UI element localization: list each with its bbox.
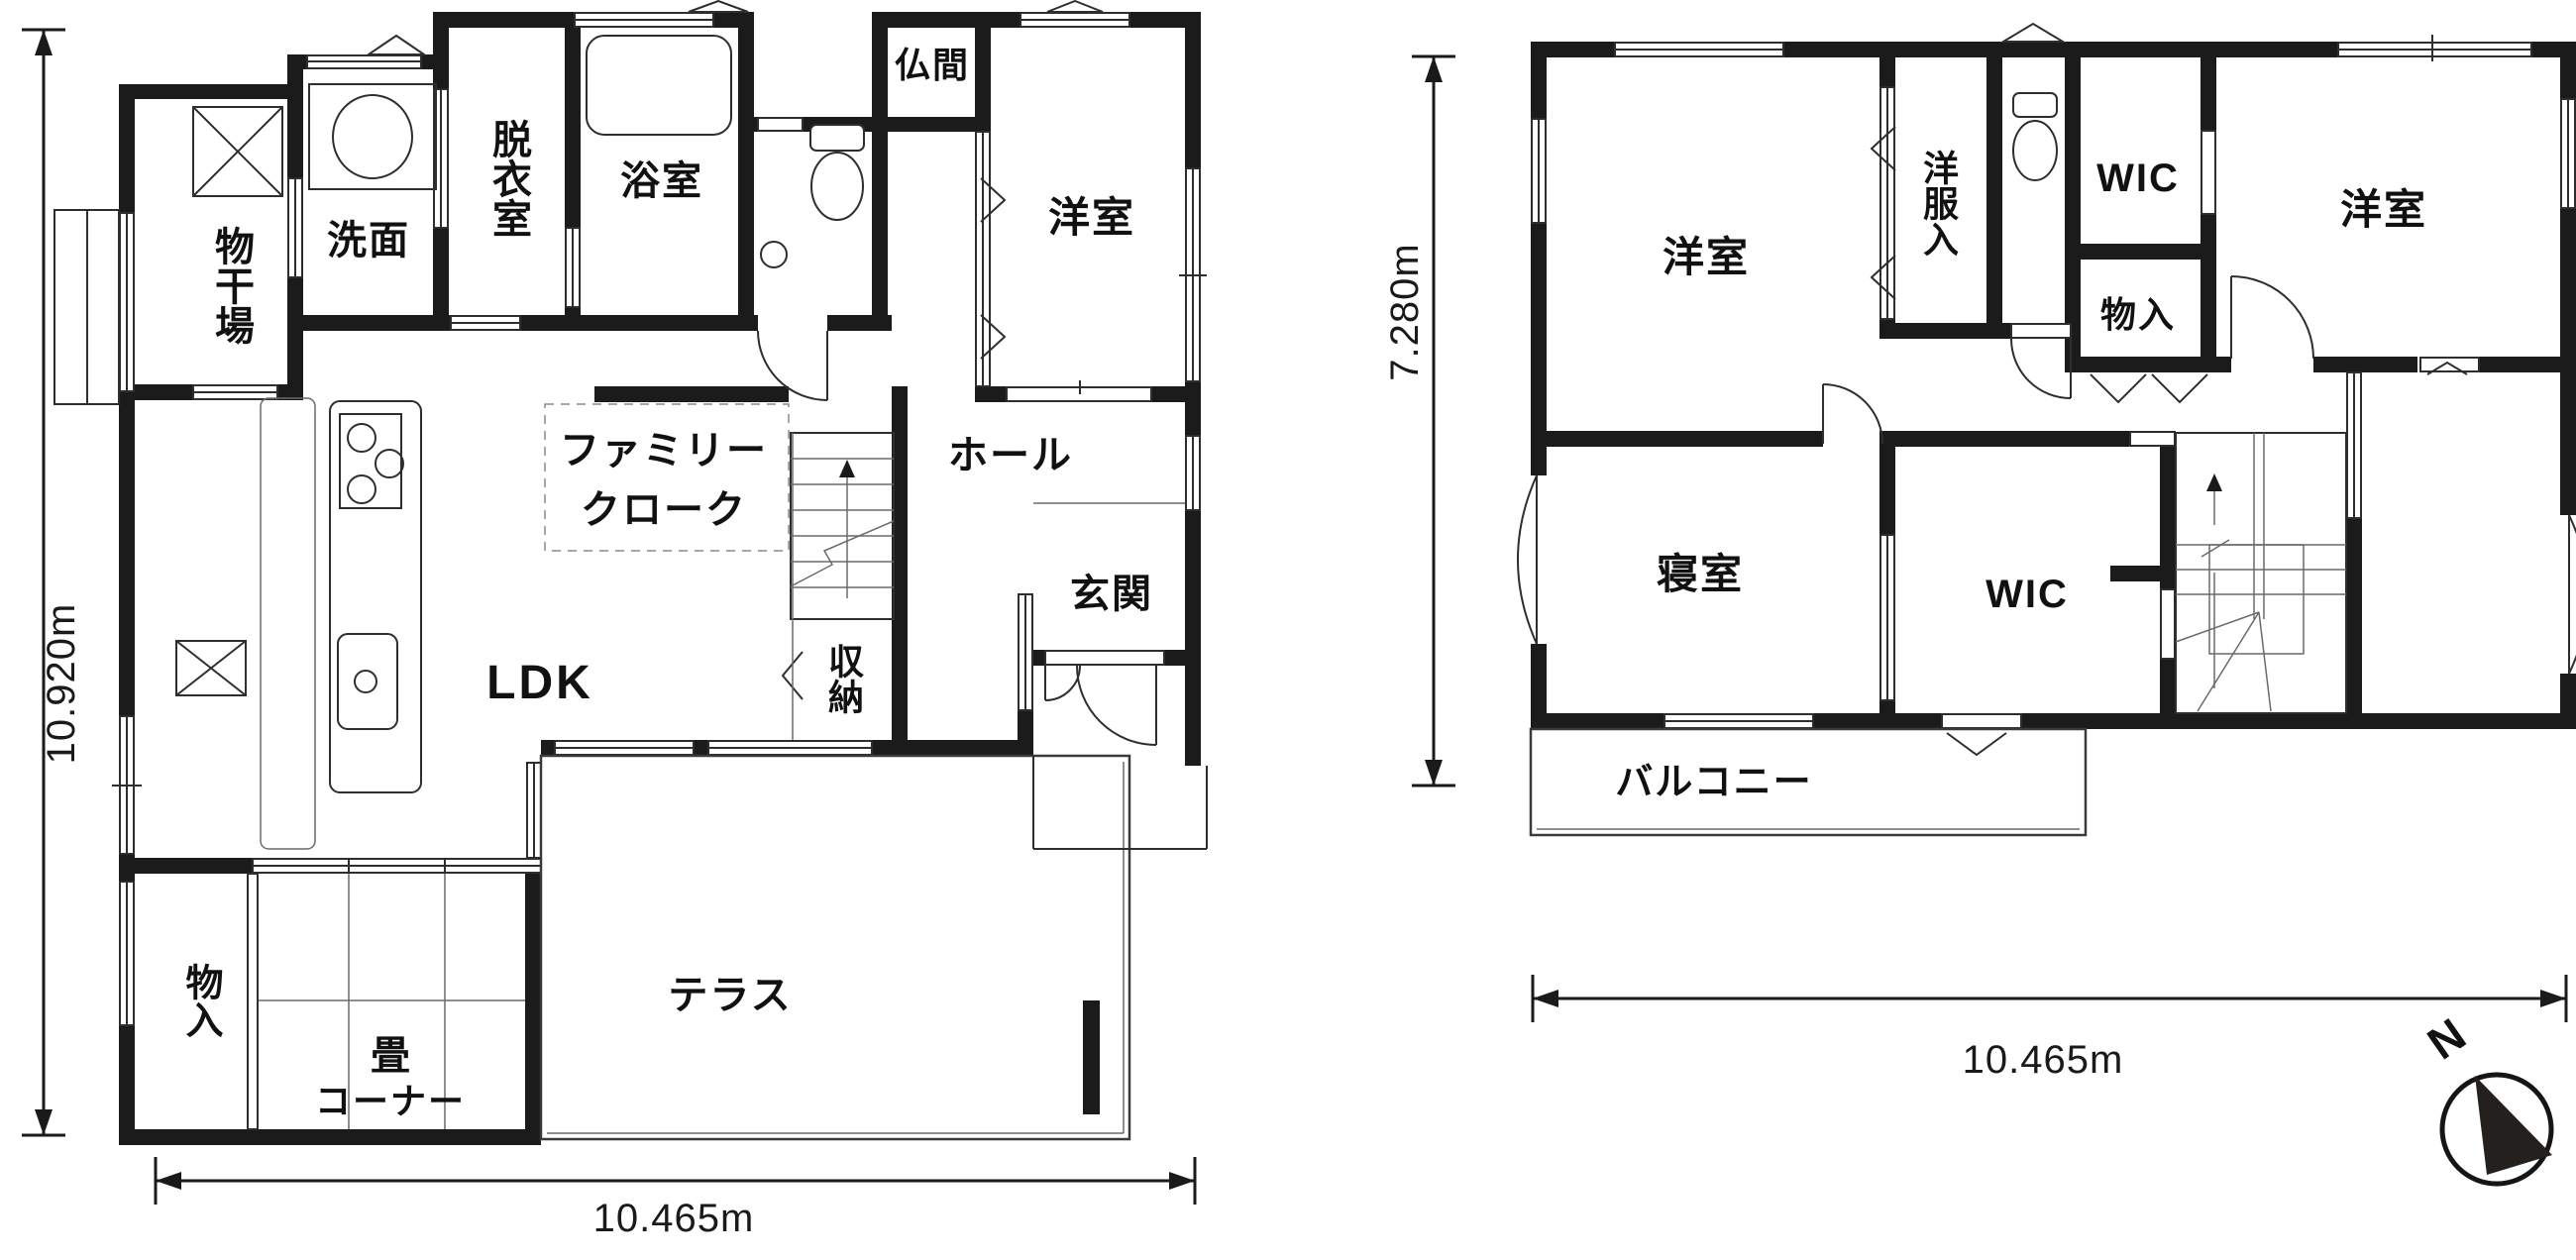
dimension-f2-height: 7.280m — [1385, 243, 1425, 380]
room-label-shinshitsu: 寝室 — [1657, 554, 1744, 595]
kitchen-counter-icon — [261, 398, 421, 849]
washbasin-icon — [309, 84, 436, 189]
f2-stairs-icon — [2176, 433, 2346, 713]
room-label-monoire-f1: 物入 — [181, 963, 219, 1038]
dimension-f1-height: 10.920m — [42, 603, 81, 765]
dimension-f1-width: 10.465m — [593, 1199, 755, 1238]
room-label-monohoshiba: 物干場 — [211, 226, 251, 345]
f2-vent-icon — [2003, 24, 2063, 42]
hatch-box-icon-ldk — [176, 641, 246, 695]
room-label-wic-top: WIC — [2096, 158, 2180, 198]
terrace-outline — [541, 756, 1129, 1139]
entrance-porch-outline — [1033, 503, 1207, 849]
dimension-lines — [22, 30, 2566, 1205]
room-label-shuunou: 収納 — [825, 643, 861, 714]
room-label-youfukuire: 洋服入 — [1920, 150, 1956, 257]
compass-icon — [2442, 1075, 2552, 1184]
room-label-tatami-line1: 畳 — [371, 1036, 412, 1076]
dimension-f2-width: 10.465m — [1963, 1040, 2124, 1080]
hatch-box-icon-top — [193, 107, 282, 196]
room-label-datsuishitsu: 脱衣室 — [488, 119, 528, 238]
room-label-tatami-line2: コーナー — [315, 1084, 466, 1119]
bathtub-icon — [587, 36, 731, 135]
toilet-icon-f2 — [2013, 93, 2057, 180]
toilet-icon-f1 — [761, 125, 864, 267]
room-label-genkan: 玄関 — [1070, 575, 1153, 614]
room-label-youshitsu-f2-right: 洋室 — [2340, 189, 2427, 231]
room-label-wic-center: WIC — [1986, 575, 2069, 614]
room-label-butsuma: 仏間 — [895, 48, 970, 83]
room-label-terrace: テラス — [668, 976, 792, 1015]
room-label-hall: ホール — [948, 436, 1073, 475]
room-label-family-cloak-line2: クローク — [581, 490, 747, 530]
floor-plan-page: 物干場 洗面 脱衣室 浴室 仏間 洋室 ファミリー クローク ホール LDK 収… — [0, 0, 2576, 1260]
room-label-family-cloak-line1: ファミリー — [560, 431, 768, 471]
room-label-youshitsu-f2-left: 洋室 — [1663, 237, 1750, 278]
room-label-ldk: LDK — [486, 660, 593, 707]
room-label-monoire-f2: 物入 — [2100, 297, 2176, 333]
room-label-youshitsu-f1: 洋室 — [1048, 197, 1135, 239]
bay-window-icon — [54, 210, 119, 404]
room-label-yokushitsu: 浴室 — [620, 161, 703, 201]
floor2-plan — [1518, 24, 2576, 835]
room-label-balcony: バルコニー — [1615, 764, 1812, 801]
room-label-senmen: 洗面 — [327, 221, 410, 261]
